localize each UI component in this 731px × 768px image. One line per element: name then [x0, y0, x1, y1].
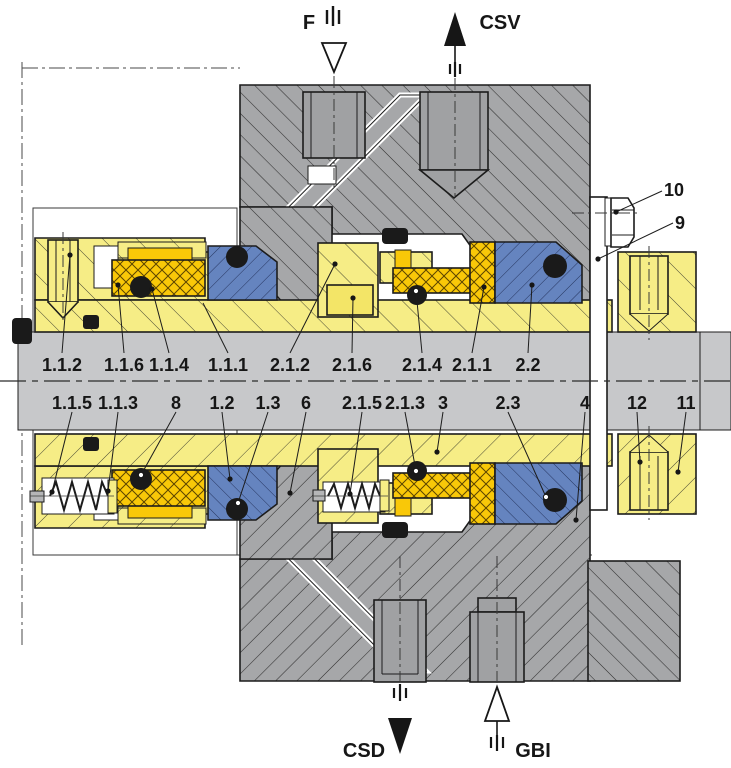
part-label: 1.3 [255, 393, 280, 413]
part-label: 2.1.3 [385, 393, 425, 413]
part-label-row-upper: 1.1.2 1.1.6 1.1.4 1.1.1 2.1.2 2.1.6 2.1.… [42, 355, 541, 375]
part-label: 3 [438, 393, 448, 413]
flow-arrow-csv [444, 12, 466, 77]
part-label: 10 [664, 180, 684, 200]
part-label: 2.1.4 [402, 355, 442, 375]
part-label: 1.1.4 [149, 355, 189, 375]
part-label: 2.1.2 [270, 355, 310, 375]
port-label-csd: CSD [343, 740, 385, 762]
drawing-canvas: 1.1.2 1.1.6 1.1.4 1.1.1 2.1.2 2.1.6 2.1.… [0, 0, 731, 768]
port-label-csv: CSV [479, 12, 521, 34]
part-label: 2.1.5 [342, 393, 382, 413]
housing-extension [588, 561, 680, 681]
port-label-f: F [303, 12, 315, 34]
part-label: 6 [301, 393, 311, 413]
arrow-down-outline-icon [322, 43, 346, 72]
part-label: 1.1.1 [208, 355, 248, 375]
flow-arrow-csd [388, 684, 412, 754]
part-label: 12 [627, 393, 647, 413]
part-label-side: 10 9 [664, 180, 685, 233]
flow-arrow-f [322, 6, 346, 72]
part-label: 9 [675, 213, 685, 233]
arrow-up-outline-icon [485, 687, 509, 721]
part-label: 1.1.3 [98, 393, 138, 413]
port-label-gbi: GBI [515, 740, 551, 762]
spring-inboard [30, 478, 117, 514]
part-label: 11 [676, 393, 695, 413]
part-label: 2.1.1 [452, 355, 492, 375]
part-label: 1.1.2 [42, 355, 82, 375]
part-label: 1.1.5 [52, 393, 92, 413]
flow-arrow-gbi [485, 687, 509, 751]
part-label: 2.1.6 [332, 355, 372, 375]
end-plate [590, 197, 607, 510]
arrow-up-filled-icon [444, 12, 466, 46]
part-label: 2.3 [495, 393, 520, 413]
part-label: 1.2 [209, 393, 234, 413]
part-label: 4 [580, 393, 590, 413]
shaft-collar-left [12, 318, 32, 344]
seal-cross-section-drawing: 1.1.2 1.1.6 1.1.4 1.1.1 2.1.2 2.1.6 2.1.… [0, 0, 731, 768]
retainer-box [327, 285, 373, 315]
part-label: 1.1.6 [104, 355, 144, 375]
part-label: 8 [171, 393, 181, 413]
part-label: 2.2 [515, 355, 540, 375]
arrow-down-filled-icon [388, 718, 412, 754]
